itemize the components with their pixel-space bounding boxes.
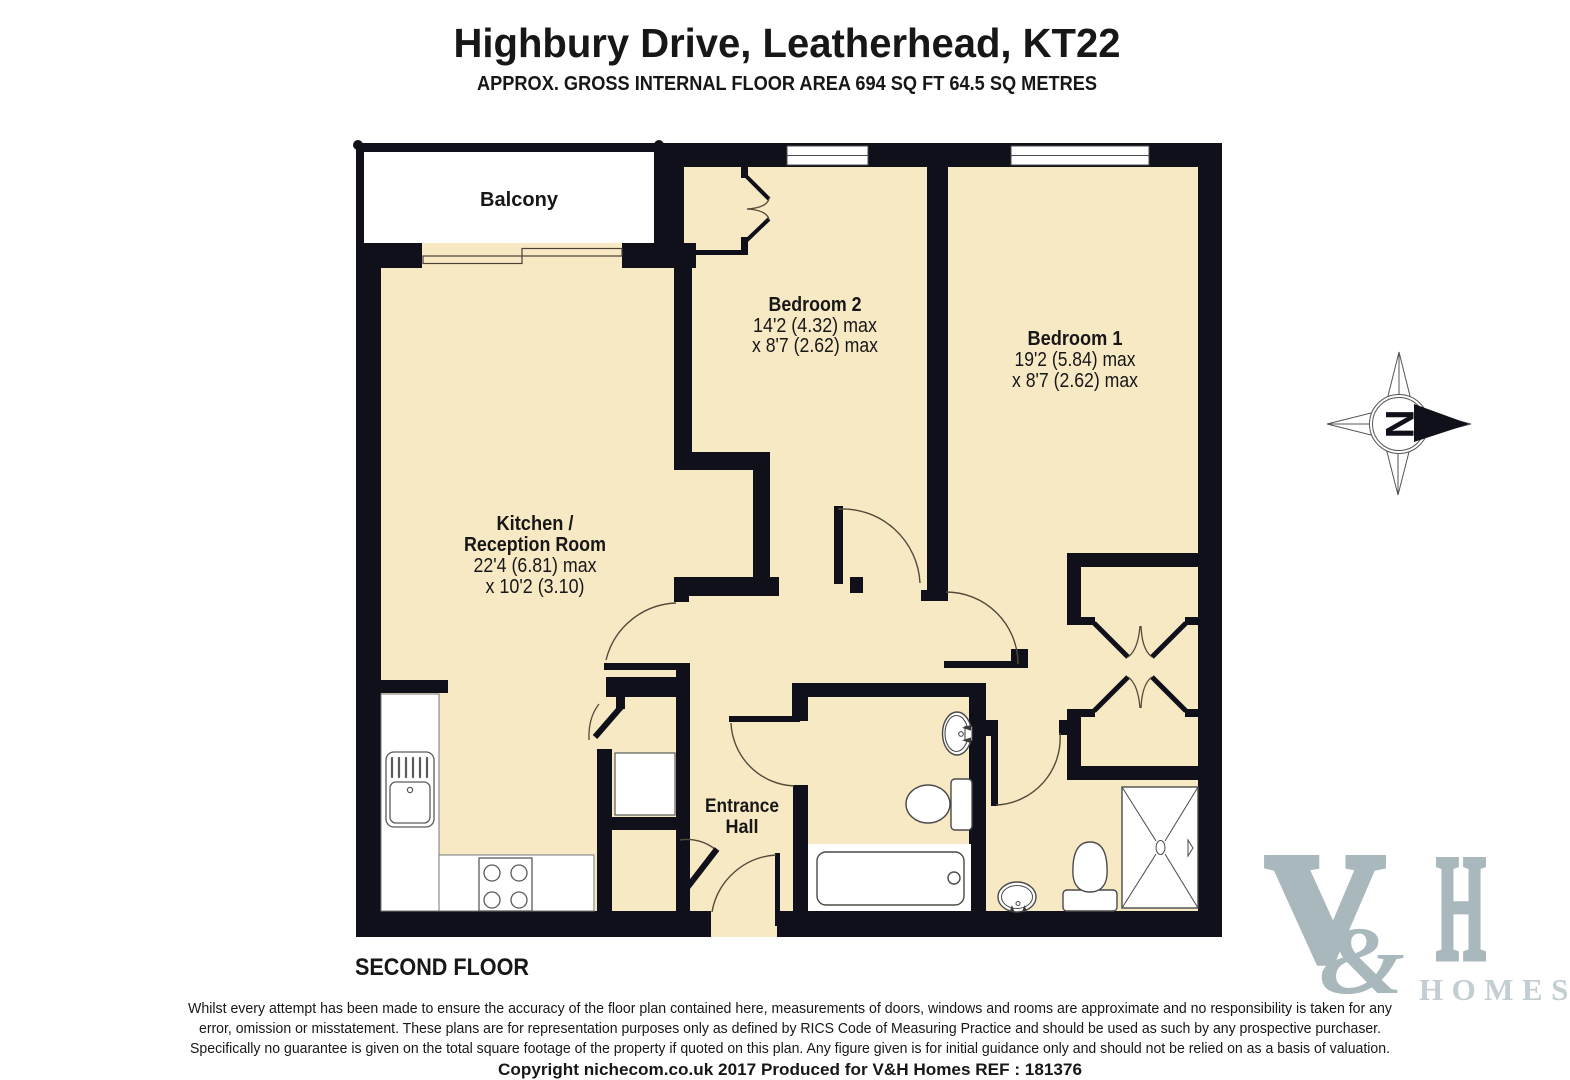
svg-text:x 10'2 (3.10): x 10'2 (3.10) (486, 576, 585, 598)
svg-text:x 8'7 (2.62) max: x 8'7 (2.62) max (1012, 370, 1138, 392)
svg-text:SECOND FLOOR: SECOND FLOOR (355, 954, 529, 981)
svg-text:Bedroom 2: Bedroom 2 (769, 294, 862, 316)
svg-text:&: & (1319, 907, 1405, 1014)
svg-text:Specifically no guarantee is g: Specifically no guarantee is given on th… (190, 1041, 1390, 1057)
svg-text:Hall: Hall (726, 817, 759, 838)
svg-text:x 8'7 (2.62) max: x 8'7 (2.62) max (752, 335, 878, 357)
svg-text:APPROX. GROSS INTERNAL FLOOR A: APPROX. GROSS INTERNAL FLOOR AREA 694 SQ… (477, 72, 1097, 95)
svg-text:Bedroom 1: Bedroom 1 (1028, 328, 1123, 350)
svg-text:Kitchen /: Kitchen / (497, 513, 574, 535)
svg-text:H: H (1436, 824, 1486, 992)
svg-text:Copyright nichecom.co.uk 2017: Copyright nichecom.co.uk 2017 Produced f… (498, 1060, 1082, 1079)
svg-text:19'2 (5.84) max: 19'2 (5.84) max (1015, 349, 1136, 371)
svg-text:Whilst every attempt has been: Whilst every attempt has been made to en… (188, 1001, 1393, 1017)
svg-text:HOMES: HOMES (1419, 972, 1570, 1007)
svg-text:Entrance: Entrance (705, 796, 779, 817)
svg-text:22'4 (6.81) max: 22'4 (6.81) max (474, 555, 597, 577)
svg-text:Highbury Drive, Leatherhead, K: Highbury Drive, Leatherhead, KT22 (454, 20, 1121, 66)
svg-text:error, omission or misstatemen: error, omission or misstatement. These p… (199, 1021, 1381, 1037)
svg-text:Reception Room: Reception Room (464, 534, 606, 556)
svg-text:N: N (1377, 410, 1421, 439)
svg-text:14'2 (4.32) max: 14'2 (4.32) max (753, 315, 877, 337)
svg-text:Balcony: Balcony (480, 189, 559, 211)
